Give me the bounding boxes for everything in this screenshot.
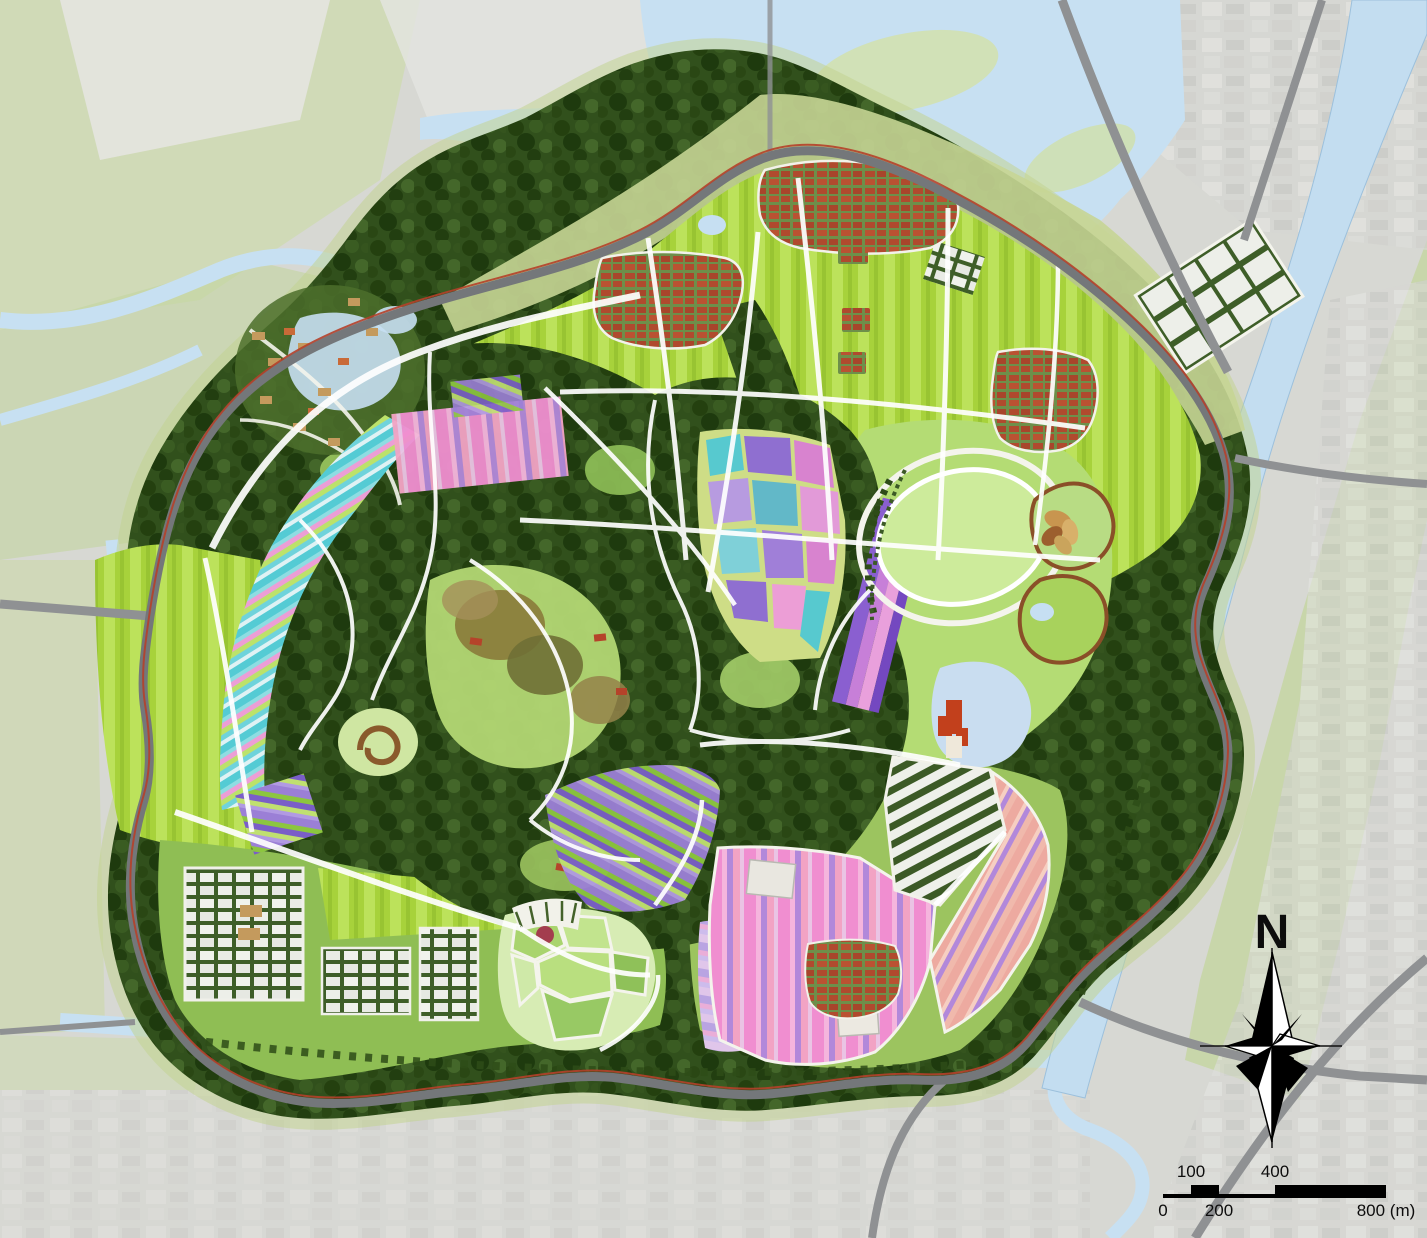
scale-tick-100: 100 [1177,1162,1205,1181]
village-southeast-e [805,940,901,1019]
site-plan-map: N 100 400 0 200 800 (m) [0,0,1427,1238]
scale-tick-400: 400 [1261,1162,1289,1181]
garden-pond [1030,603,1054,621]
village-east-c [991,349,1097,452]
spiral-mound [338,708,418,776]
scale-tick-800: 800 (m) [1357,1201,1416,1220]
compass-north-label: N [1255,906,1290,959]
scale-tick-0: 0 [1158,1201,1167,1220]
scale-tick-200: 200 [1205,1201,1233,1220]
village-pond [698,215,726,235]
